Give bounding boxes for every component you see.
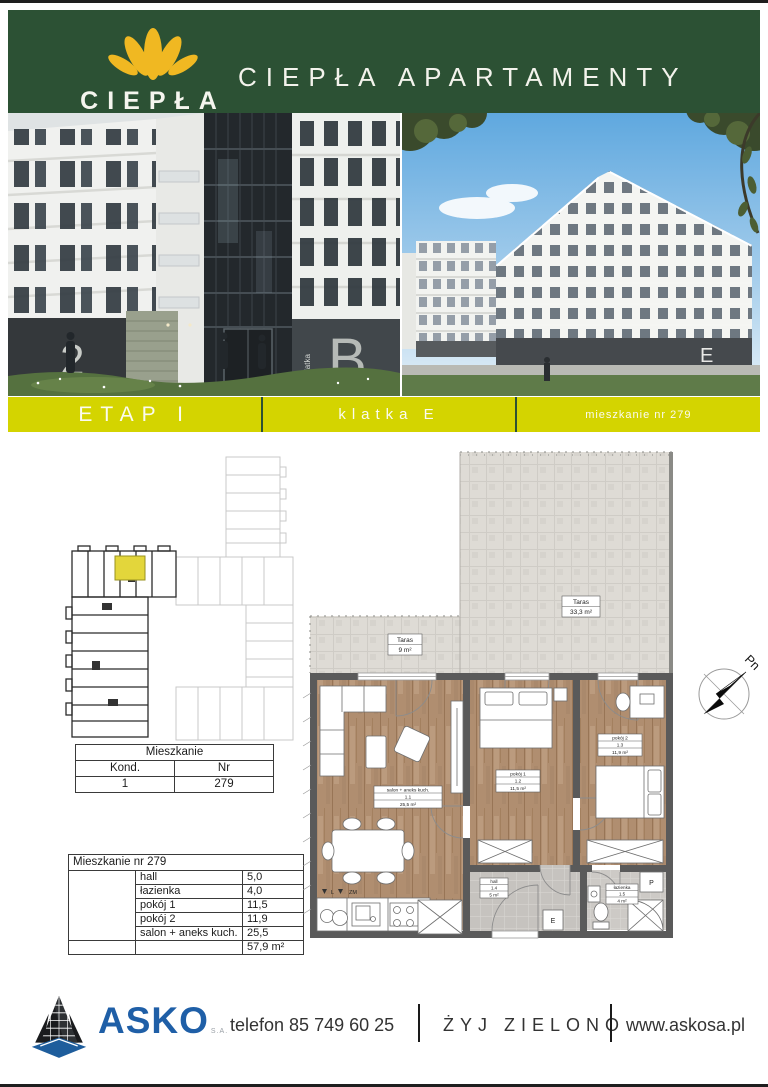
banner-mieszkanie: mieszkanie nr 279 (515, 397, 760, 432)
footer-divider (610, 1004, 612, 1042)
brand-name: ASKO (98, 1000, 209, 1041)
lotus-logo-icon (93, 24, 213, 80)
label-salon: salon + aneks kuch. 1.1 25,5 m² (374, 786, 442, 808)
svg-text:1.2: 1.2 (515, 779, 522, 784)
building-letter-e: E (700, 345, 713, 367)
svg-text:Taras: Taras (397, 637, 414, 644)
room-area: 5,0 (243, 871, 304, 885)
flyer-page: CIEPŁA APARTAMENTY CIEPŁA APARTAMENTY (0, 0, 768, 1087)
svg-text:11,5 m²: 11,5 m² (510, 786, 526, 792)
unit-table: Mieszkanie Kond. Nr 1 279 (75, 744, 274, 793)
rooms-table-title: Mieszkanie nr 279 (69, 855, 304, 871)
svg-text:1.4: 1.4 (491, 886, 498, 891)
rooms-table-empty (69, 941, 136, 955)
svg-text:5 m²: 5 m² (489, 893, 499, 898)
unit-table-col-kond: Kond. (76, 761, 175, 777)
svg-text:1.1: 1.1 (405, 795, 412, 800)
room-area: 11,9 (243, 913, 304, 927)
svg-text:łazienka: łazienka (614, 885, 631, 890)
asko-wordmark: ASKOS.A. (98, 1000, 228, 1042)
page-title: CIEPŁA APARTAMENTY (238, 62, 678, 93)
label-pokoj1: pokój 1 1.2 11,5 m² (496, 770, 540, 792)
banner-klatka: klatka E (261, 397, 514, 432)
room-area: 25,5 (243, 927, 304, 941)
svg-text:9 m²: 9 m² (399, 647, 413, 654)
rooms-table-empty (136, 941, 243, 955)
svg-text:pokój 2: pokój 2 (612, 736, 628, 742)
logo-title: CIEPŁA (38, 87, 268, 116)
room-name: łazienka (136, 885, 243, 899)
unit-table-col-nr: Nr (175, 761, 274, 777)
total-area: 57,9 m² (243, 941, 304, 955)
svg-text:salon + aneks kuch.: salon + aneks kuch. (387, 788, 430, 794)
asko-logo-icon (25, 992, 93, 1066)
label-taras-small: Taras 9 m² (388, 634, 422, 655)
washer-label: P (649, 880, 654, 887)
header: CIEPŁA APARTAMENTY CIEPŁA APARTAMENTY (8, 10, 760, 113)
svg-text:Taras: Taras (573, 599, 590, 606)
unit-table-title: Mieszkanie (76, 745, 274, 761)
kitchen-label-l: L (331, 890, 334, 896)
svg-text:pokój 1: pokój 1 (510, 772, 526, 778)
footer-slogan: ŻYJ ZIELONO (443, 1015, 625, 1036)
apartment-floorplan: L ZM P E Taras 33,3 m² Taras 9 m² (300, 448, 768, 960)
banner-etap: ETAP I (8, 397, 261, 432)
electric-box-label: E (551, 918, 556, 925)
brand-suffix: S.A. (211, 1028, 228, 1035)
label-pokoj2: pokój 2 1.3 11,9 m² (598, 734, 642, 756)
rooms-table-spacer (69, 871, 136, 941)
svg-text:25,5 m²: 25,5 m² (400, 802, 417, 808)
room-name: pokój 1 (136, 899, 243, 913)
compass-icon: Pn (699, 652, 763, 719)
site-key-plan (58, 455, 296, 743)
compass-north-label: Pn (742, 652, 763, 673)
label-hall: hall 1.4 5 m² (480, 878, 508, 898)
footer-website: www.askosa.pl (626, 1015, 745, 1036)
room-name: salon + aneks kuch. (136, 927, 243, 941)
left-building-render: 2 B klatka (8, 113, 400, 396)
room-name: pokój 2 (136, 913, 243, 927)
svg-text:4 m²: 4 m² (617, 899, 627, 904)
svg-text:1.3: 1.3 (617, 743, 624, 748)
svg-text:hall: hall (490, 879, 497, 884)
top-edge-line (0, 0, 768, 3)
highlighted-unit (115, 556, 145, 580)
room-name: hall (136, 871, 243, 885)
label-taras-large: Taras 33,3 m² (562, 596, 600, 617)
rooms-table: Mieszkanie nr 279 hall 5,0 łazienka 4,0 … (68, 854, 304, 955)
unit-nr-value: 279 (175, 777, 274, 793)
svg-text:33,3 m²: 33,3 m² (570, 609, 593, 616)
label-lazienka: łazienka 1.5 4 m² (606, 884, 638, 904)
unit-kond-value: 1 (76, 777, 175, 793)
footer-phone: telefon 85 749 60 25 (230, 1015, 394, 1036)
svg-text:1.5: 1.5 (619, 892, 626, 897)
room-area: 4,0 (243, 885, 304, 899)
kitchen-label-zm: ZM (349, 890, 357, 896)
svg-text:11,9 m²: 11,9 m² (612, 750, 628, 756)
footer-divider (418, 1004, 420, 1042)
banner: ETAP I klatka E mieszkanie nr 279 (8, 397, 760, 432)
right-building-render: E (402, 113, 760, 396)
room-area: 11,5 (243, 899, 304, 913)
